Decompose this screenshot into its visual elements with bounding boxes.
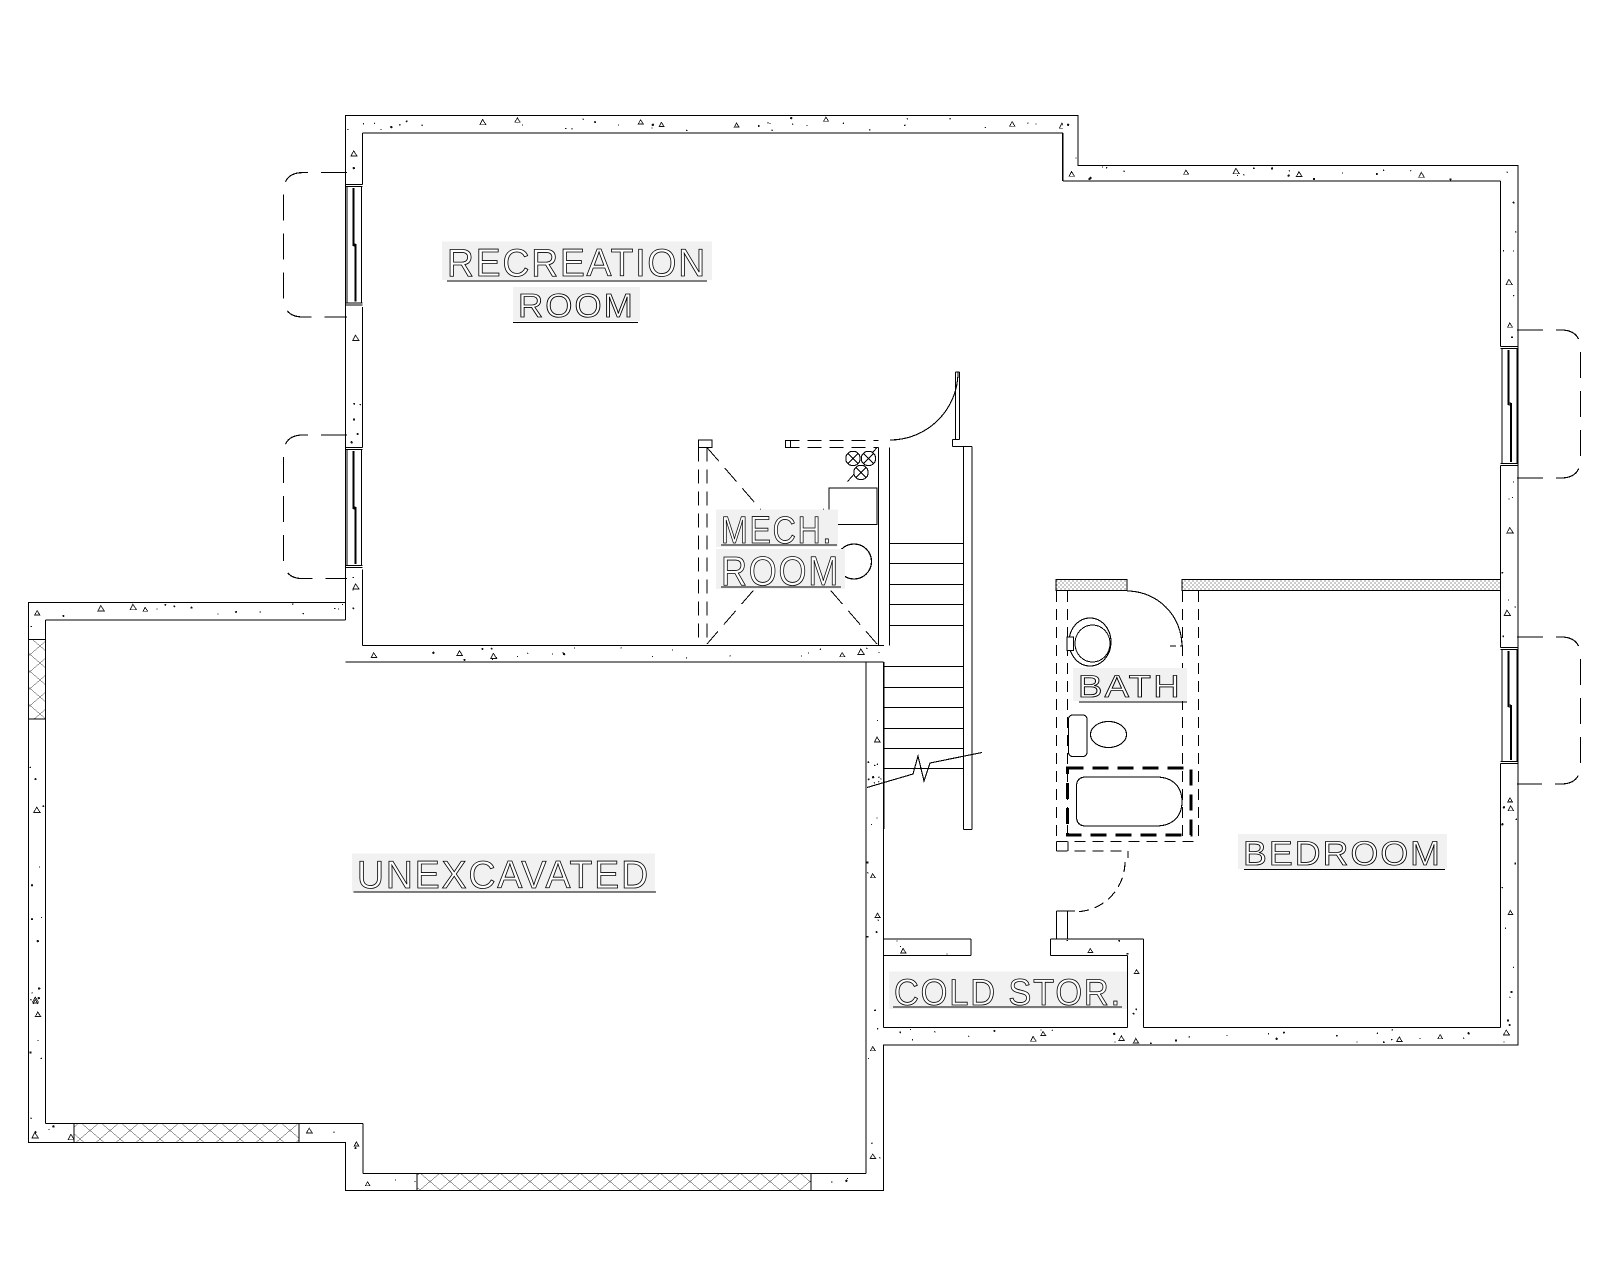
svg-text:BEDROOM: BEDROOM <box>1243 835 1442 873</box>
svg-text:RECREATION: RECREATION <box>447 242 707 285</box>
svg-text:ROOM: ROOM <box>518 287 635 324</box>
svg-text:UNEXCAVATED: UNEXCAVATED <box>357 854 650 897</box>
svg-text:BATH: BATH <box>1078 668 1182 704</box>
